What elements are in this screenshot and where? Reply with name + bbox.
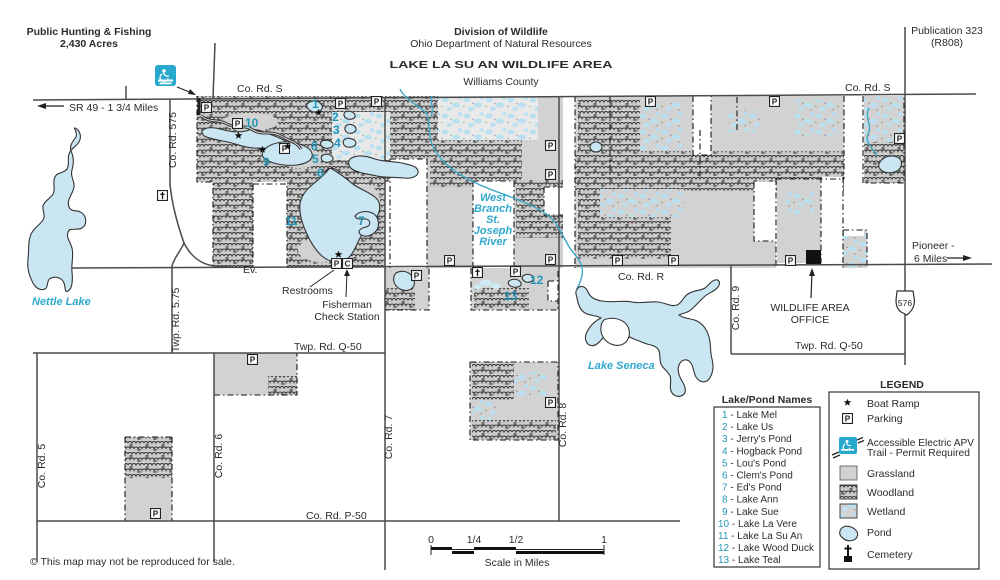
svg-text:WILDLIFE AREA: WILDLIFE AREA [770,302,849,314]
svg-text:Co. Rd. P-50: Co. Rd. P-50 [306,510,367,522]
svg-text:Twp. Rd. Q-50: Twp. Rd. Q-50 [294,341,362,353]
svg-text:Williams County: Williams County [463,76,539,88]
svg-text:SR 49 - 1 3/4 Miles: SR 49 - 1 3/4 Miles [69,102,158,114]
svg-text:3: 3 [333,123,340,137]
svg-text:4 - Hogback Pond: 4 - Hogback Pond [722,446,802,457]
svg-text:Scale in Miles: Scale in Miles [485,557,550,569]
svg-text:Wetland: Wetland [867,506,905,518]
svg-text:Lake/Pond Names: Lake/Pond Names [722,394,813,406]
svg-text:4: 4 [334,136,341,150]
svg-text:2 - Lake Us: 2 - Lake Us [722,422,773,433]
svg-text:10: 10 [245,116,259,130]
svg-text:Cemetery: Cemetery [867,549,913,561]
svg-text:LAKE LA SU AN WILDLIFE AREA: LAKE LA SU AN WILDLIFE AREA [390,59,614,71]
svg-text:Pioneer -: Pioneer - [912,240,955,252]
svg-text:Public Hunting & Fishing: Public Hunting & Fishing [27,26,152,38]
svg-text:10 - Lake La Vere: 10 - Lake La Vere [718,519,797,530]
svg-text:6 - Clem's Pond: 6 - Clem's Pond [722,471,793,482]
svg-text:Twp. Rd. Q-50: Twp. Rd. Q-50 [795,340,863,352]
svg-text:Fisherman: Fisherman [322,299,372,311]
svg-text:Publication 323: Publication 323 [911,25,983,37]
svg-text:Ev.: Ev. [243,264,257,276]
svg-text:Co. Rd. 8: Co. Rd. 8 [557,403,569,448]
svg-text:1/4: 1/4 [467,534,482,546]
svg-text:11 - Lake La Su An: 11 - Lake La Su An [718,531,802,542]
svg-text:Check Station: Check Station [314,311,380,323]
svg-text:9: 9 [263,155,270,169]
svg-text:3 - Jerry's Pond: 3 - Jerry's Pond [722,434,792,445]
svg-text:6: 6 [317,166,324,180]
svg-text:Woodland: Woodland [867,487,914,499]
svg-text:5: 5 [312,152,319,166]
svg-text:8 - Lake Ann: 8 - Lake Ann [722,495,778,506]
svg-text:9 - Lake Sue: 9 - Lake Sue [722,507,779,518]
svg-text:OFFICE: OFFICE [791,314,830,326]
svg-text:LEGEND: LEGEND [880,379,924,391]
svg-text:Boat Ramp: Boat Ramp [867,398,920,410]
svg-text:(R808): (R808) [931,37,963,49]
svg-text:Parking: Parking [867,413,903,425]
svg-text:Co. Rd. 6: Co. Rd. 6 [213,434,225,479]
svg-text:Co. Rd. R: Co. Rd. R [618,271,665,283]
svg-text:Pond: Pond [867,527,892,539]
svg-text:5 - Lou's Pond: 5 - Lou's Pond [722,458,786,469]
svg-text:12 - Lake Wood Duck: 12 - Lake Wood Duck [718,543,815,554]
svg-text:2: 2 [332,110,339,124]
svg-text:1/2: 1/2 [509,534,524,546]
svg-text:Twp. Rd. 5.75: Twp. Rd. 5.75 [170,287,182,352]
svg-text:Co. Rd. 7: Co. Rd. 7 [383,415,395,460]
svg-text:Nettle Lake: Nettle Lake [32,296,91,308]
svg-text:Lake Seneca: Lake Seneca [588,360,655,372]
svg-text:Grassland: Grassland [867,468,915,480]
svg-text:Ohio Department of Natural Res: Ohio Department of Natural Resources [410,38,592,50]
svg-text:Co. Rd. S: Co. Rd. S [237,83,283,95]
svg-text:13: 13 [504,289,518,303]
svg-text:576: 576 [898,298,912,308]
svg-text:Co. Rd. 575: Co. Rd. 575 [167,112,179,168]
svg-text:Co. Rd. S: Co. Rd. S [845,82,891,94]
svg-text:Co. Rd. 5: Co. Rd. 5 [36,444,48,489]
svg-text:Co. Rd. 9: Co. Rd. 9 [730,286,742,331]
svg-text:© This map may not be reproduc: © This map may not be reproduced for sal… [30,556,235,568]
svg-text:Trail - Permit Required: Trail - Permit Required [867,447,970,459]
svg-text:1 - Lake Mel: 1 - Lake Mel [722,410,777,421]
svg-text:11: 11 [285,214,298,228]
svg-text:8: 8 [311,139,318,153]
svg-text:13 - Lake Teal: 13 - Lake Teal [718,555,781,566]
svg-text:0: 0 [428,534,434,546]
svg-text:12: 12 [530,273,544,287]
svg-text:1: 1 [601,534,607,546]
svg-text:7 - Ed's Pond: 7 - Ed's Pond [722,483,782,494]
svg-text:Division of Wildlife: Division of Wildlife [454,26,548,38]
svg-text:1: 1 [312,97,319,111]
svg-text:2,430 Acres: 2,430 Acres [60,38,118,50]
svg-text:7: 7 [358,214,365,228]
svg-text:River: River [479,236,507,248]
svg-text:6 Miles: 6 Miles [914,253,947,265]
svg-text:Restrooms: Restrooms [282,285,333,297]
